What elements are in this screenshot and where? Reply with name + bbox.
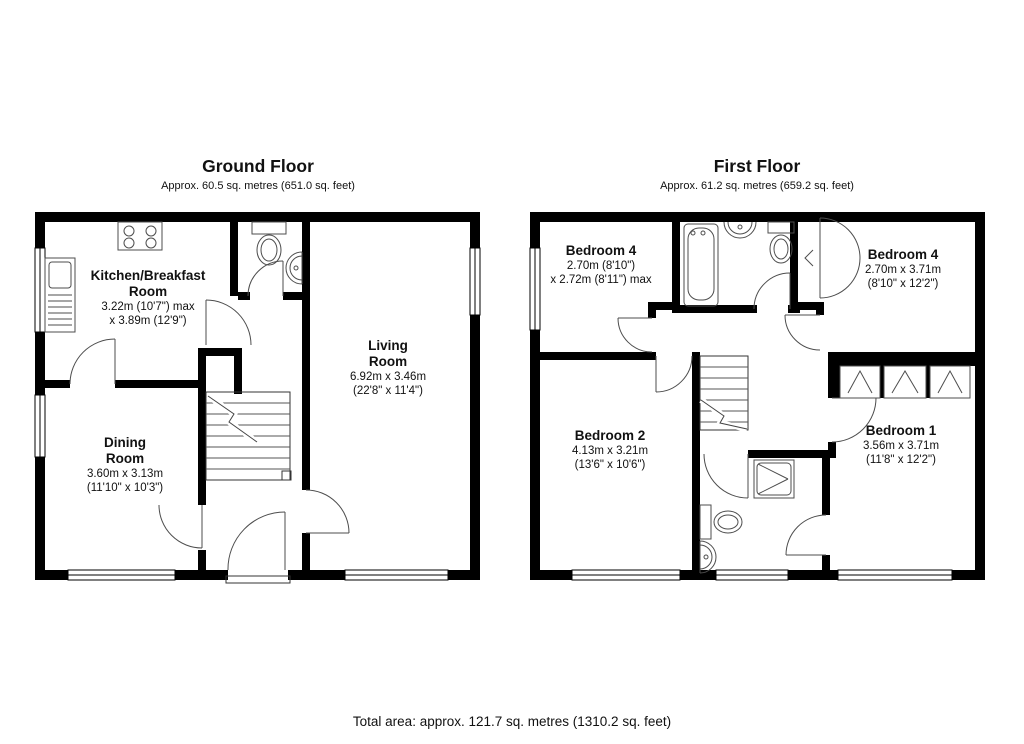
bathtub-icon (684, 224, 718, 306)
shower-icon (754, 460, 794, 498)
kitchen-sink-icon (45, 258, 75, 332)
room-label-bedroom4-right: Bedroom 4 2.70m x 3.71m (8'10" x 12'2") (865, 247, 941, 291)
front-door (226, 512, 290, 583)
wardrobe-icons (840, 366, 970, 398)
staircase (206, 392, 291, 480)
room-label-dining: Dining Room 3.60m x 3.13m (11'10" x 10'3… (87, 435, 163, 495)
windows (530, 248, 952, 580)
first-floor-subtitle: Approx. 61.2 sq. metres (659.2 sq. feet) (660, 180, 854, 192)
ground-floor-subtitle: Approx. 60.5 sq. metres (651.0 sq. feet) (161, 180, 355, 192)
ground-floor-title: Ground Floor (202, 156, 314, 177)
floorplan-page: Ground Floor Approx. 60.5 sq. metres (65… (0, 0, 1024, 744)
room-label-living: Living Room 6.92m x 3.46m (22'8" x 11'4"… (350, 338, 426, 398)
room-label-bedroom4-left: Bedroom 4 2.70m (8'10") x 2.72m (8'11") … (550, 243, 651, 287)
staircase (700, 356, 748, 430)
interior-doors (618, 273, 876, 555)
room-label-bedroom2: Bedroom 2 4.13m x 3.21m (13'6" x 10'6") (572, 428, 648, 472)
total-area-text: Total area: approx. 121.7 sq. metres (13… (353, 714, 671, 729)
room-label-kitchen: Kitchen/Breakfast Room 3.22m (10'7") max… (91, 268, 206, 328)
ensuite-basin-icon (700, 541, 716, 573)
room-label-bedroom1: Bedroom 1 3.56m x 3.71m (11'8" x 12'2") (863, 423, 939, 467)
ensuite-toilet-icon (700, 505, 742, 539)
toilet-icon (252, 222, 286, 265)
hob-icon (118, 222, 162, 250)
first-floor-title: First Floor (714, 156, 801, 177)
closet-doors (805, 218, 860, 298)
bathroom-basin-icon (724, 222, 756, 238)
basin-icon (286, 252, 302, 284)
